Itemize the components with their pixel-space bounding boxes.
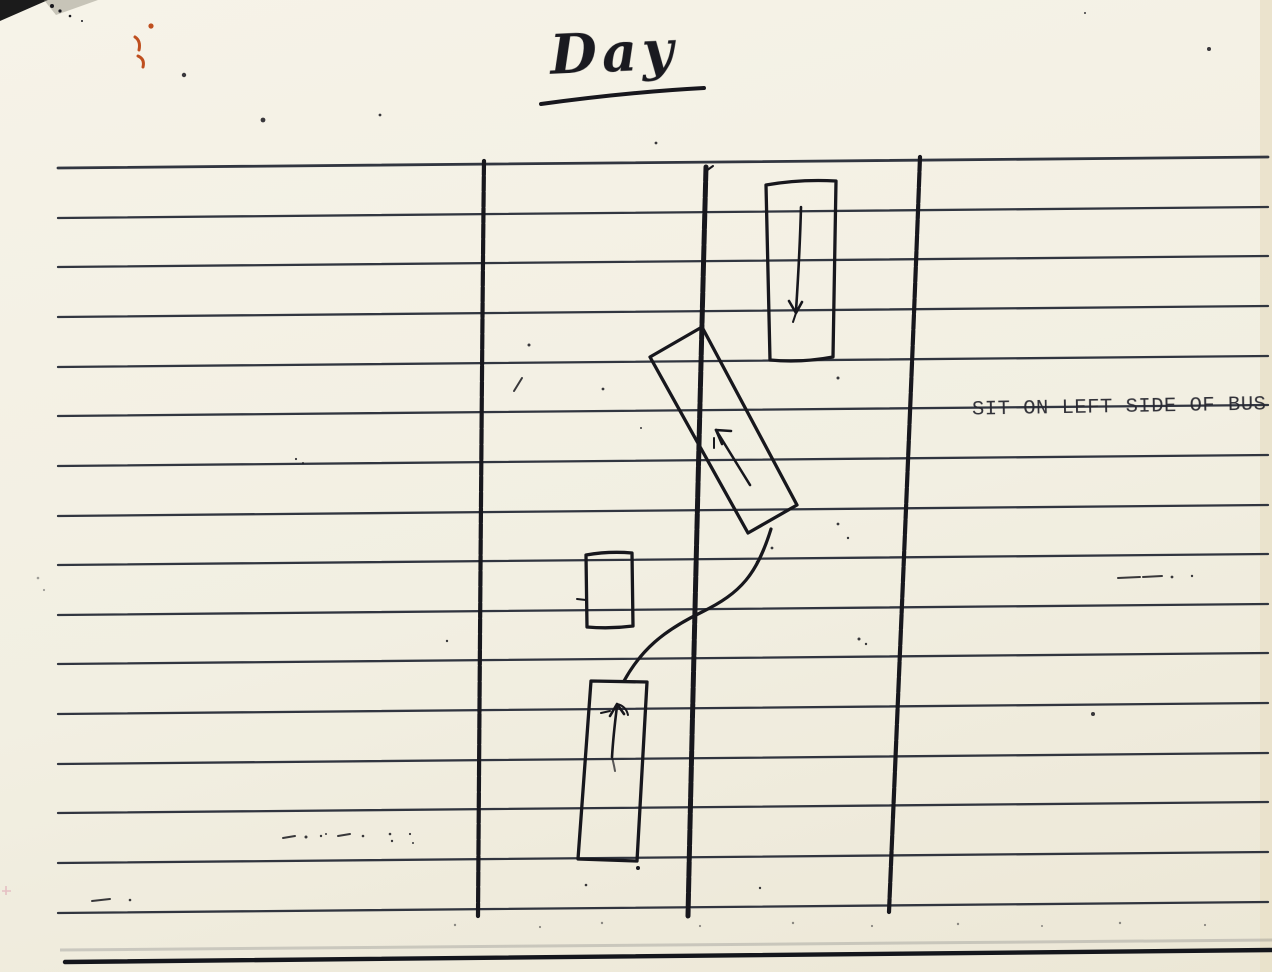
bottom-line-shadow bbox=[60, 940, 1272, 950]
stray-dash bbox=[283, 836, 295, 838]
down-arrow-tip-stub bbox=[793, 313, 796, 322]
scan-noise bbox=[2, 12, 1211, 928]
corner-shadow-triangle bbox=[0, 0, 48, 21]
faint-pink-cross bbox=[2, 886, 11, 895]
bottom-dot-row bbox=[454, 922, 1206, 928]
lane-line-right bbox=[889, 157, 920, 912]
page-title: Day bbox=[549, 17, 680, 87]
scan-corner-artifact bbox=[0, 0, 98, 22]
up-arrow-tick bbox=[601, 711, 610, 713]
stray-dash bbox=[338, 834, 350, 836]
vehicle-tilted-center bbox=[650, 327, 797, 533]
down-arrow-shaft bbox=[796, 207, 801, 311]
stray-dash bbox=[92, 899, 110, 901]
title-underline bbox=[541, 88, 704, 104]
bottom-heavy-line bbox=[65, 950, 1272, 962]
stray-pen-tick bbox=[514, 378, 522, 391]
vehicle-small-box-left bbox=[577, 552, 633, 627]
scanned-notebook-page: Day SIT ON LEFT SIDE OF BUS bbox=[0, 0, 1272, 972]
vehicle-outline bbox=[586, 552, 633, 627]
lane-line-left bbox=[478, 161, 484, 916]
lane-lines bbox=[478, 157, 920, 916]
small-box-side-tick bbox=[577, 599, 586, 600]
vehicle-bus-top-right bbox=[766, 181, 836, 362]
paper-edge-strip bbox=[1260, 0, 1272, 972]
red-pen-marks bbox=[135, 23, 154, 67]
stray-dash bbox=[1118, 577, 1140, 578]
stray-dash bbox=[1143, 576, 1162, 577]
red-fleck bbox=[138, 56, 143, 67]
lane-line-center bbox=[688, 167, 706, 916]
ruled-lines bbox=[58, 157, 1272, 962]
red-fleck bbox=[148, 23, 153, 28]
red-fleck bbox=[135, 37, 140, 50]
corner-ink-blot bbox=[636, 866, 640, 870]
sketch-svg bbox=[0, 0, 1272, 972]
upleft-arrow-shaft bbox=[716, 430, 750, 485]
